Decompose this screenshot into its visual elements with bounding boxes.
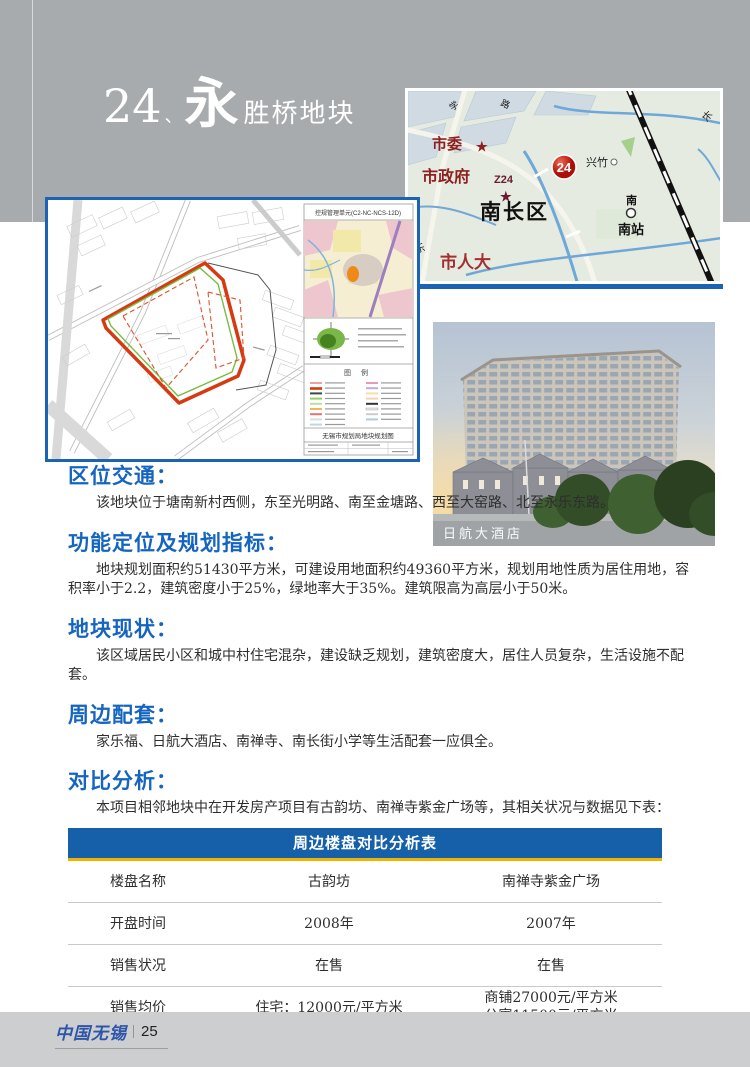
row-label: 楼盘名称 — [68, 871, 218, 891]
section-body-planning: 地块规划面积约51430平方米，可建设用地面积约49360平方米，规划用地性质为… — [68, 561, 694, 600]
planning-map: 控规管理单元(C2-NC-NCS-12D) — [45, 197, 420, 462]
section-body-status: 该区域居民小区和城中村住宅混杂，建设缺乏规划，建筑密度大，居住人员复杂，生活设施… — [68, 647, 694, 686]
cell-sale-status-2: 在售 — [440, 955, 662, 975]
section-body-comparison: 本项目相邻地块中在开发房产项目有古韵坊、南禅寺紫金广场等，其相关状况与数据见下表… — [68, 799, 694, 819]
page-footer: 中国无锡 25 — [0, 1012, 750, 1067]
legend-title: 图 例 — [344, 368, 372, 377]
document-page: 24 、 永 胜桥地块 — [0, 0, 750, 1067]
cell-nanchansi: 南禅寺紫金广场 — [440, 871, 662, 891]
label-city-committee: 市委 — [432, 135, 462, 153]
label-south: 南 — [626, 193, 637, 207]
star-icon: ★ — [476, 139, 488, 154]
plan-sidebar: 控规管理单元(C2-NC-NCS-12D) — [304, 204, 413, 455]
section-body-amenities: 家乐福、日航大酒店、南禅寺、南长街小学等生活配套一应俱全。 — [68, 733, 694, 753]
price-line-1: 商铺27000元/平方米 — [484, 990, 617, 1006]
overview-map-image: 学 路 长 乐 市委 ★ 市政府 Z24 ★ 南长区 兴竹 南 南站 市人大 — [408, 91, 720, 281]
row-label: 销售状况 — [68, 955, 218, 975]
footer-divider — [133, 1025, 134, 1038]
page-title: 24 、 永 胜桥地块 — [103, 76, 356, 130]
title-rest: 胜桥地块 — [244, 93, 356, 130]
cell-sale-status-1: 在售 — [218, 955, 440, 975]
label-peoples-congress: 市人大 — [440, 252, 491, 272]
cell-guyunfang: 古韵坊 — [218, 871, 440, 891]
overview-map: 学 路 长 乐 市委 ★ 市政府 Z24 ★ 南长区 兴竹 南 南站 市人大 — [405, 88, 723, 289]
footer-logo-group: 中国无锡 25 — [55, 1019, 168, 1049]
table-title: 周边楼盘对比分析表 — [68, 828, 662, 861]
section-heading-location: 区位交通： — [68, 460, 694, 490]
label-south-station: 南站 — [618, 222, 644, 237]
section-body-location: 该地块位于塘南新村西侧，东至光明路、南至金塘路、西至大窑路、北至永乐东路。 — [68, 494, 694, 514]
label-marker-code: Z24 — [494, 174, 514, 186]
main-content: 区位交通： 该地块位于塘南新村西侧，东至光明路、南至金塘路、西至大窑路、北至永乐… — [68, 460, 694, 1067]
plan-title: 控规管理单元(C2-NC-NCS-12D) — [315, 209, 401, 217]
planning-map-image: 控规管理单元(C2-NC-NCS-12D) — [48, 200, 417, 459]
label-city-government: 市政府 — [422, 167, 470, 186]
label-xingzhu: 兴竹 — [586, 155, 608, 169]
plot-24-badge: 24 — [552, 155, 576, 179]
title-number: 24 — [103, 83, 162, 129]
section-heading-planning: 功能定位及规划指标： — [68, 527, 694, 557]
page-number: 25 — [141, 1023, 158, 1040]
section-heading-status: 地块现状： — [68, 613, 694, 643]
label-district: 南长区 — [480, 200, 549, 224]
section-heading-comparison: 对比分析： — [68, 765, 694, 795]
plan-block-title: 无锡市规划局地块规划图 — [322, 431, 394, 440]
china-wuxi-logo: 中国无锡 — [55, 1019, 127, 1044]
cell-open-year-2: 2007年 — [440, 913, 662, 933]
cell-open-year-1: 2008年 — [218, 913, 440, 933]
section-heading-amenities: 周边配套： — [68, 699, 694, 729]
badge-number: 24 — [557, 160, 572, 175]
table-row: 楼盘名称 古韵坊 南禅寺紫金广场 — [68, 861, 662, 903]
table-row: 开盘时间 2008年 2007年 — [68, 903, 662, 945]
row-label: 开盘时间 — [68, 913, 218, 933]
comparison-table: 周边楼盘对比分析表 楼盘名称 古韵坊 南禅寺紫金广场 开盘时间 2008年 20… — [68, 828, 662, 1031]
table-row: 销售状况 在售 在售 — [68, 945, 662, 987]
header-decor-line — [32, 0, 33, 222]
title-big-char: 永 — [185, 76, 239, 130]
title-separator: 、 — [165, 102, 183, 128]
